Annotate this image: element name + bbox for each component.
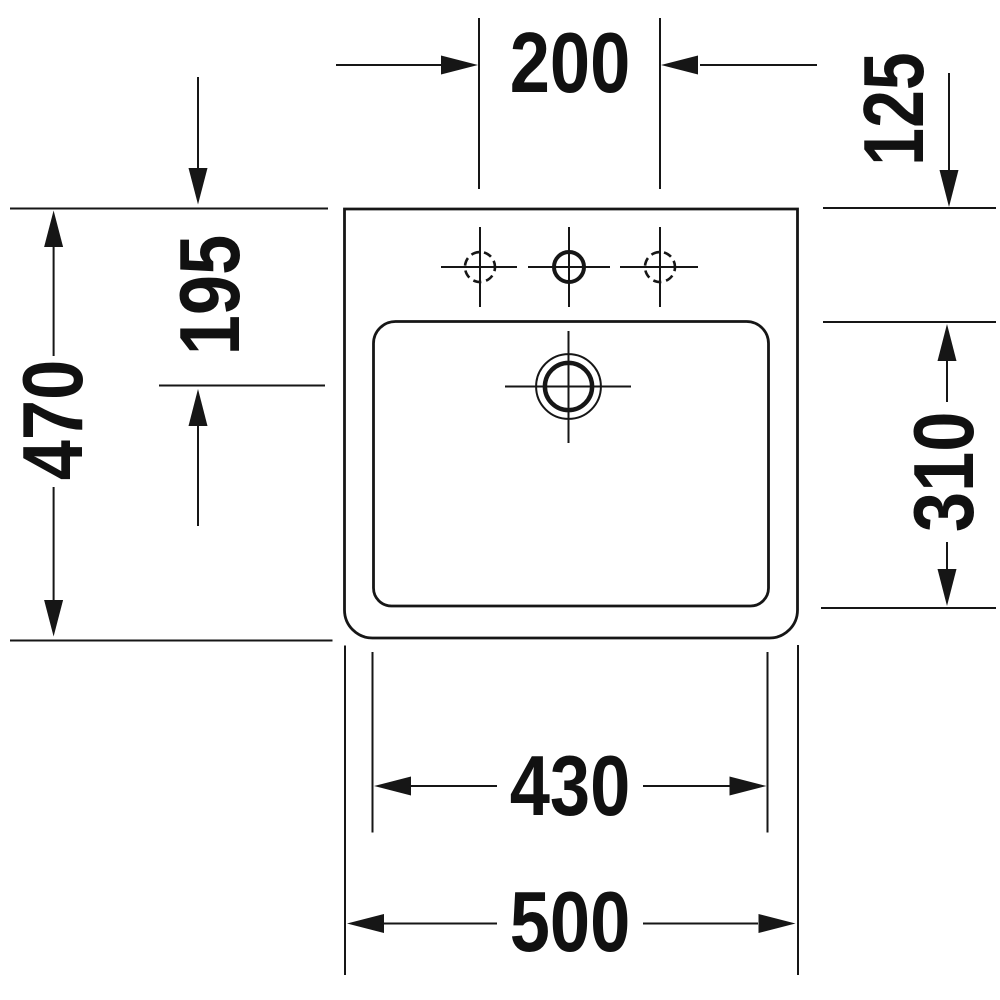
svg-text:310: 310	[896, 412, 991, 533]
svg-text:430: 430	[510, 738, 631, 833]
svg-text:125: 125	[847, 52, 942, 165]
svg-text:195: 195	[162, 235, 257, 356]
svg-text:500: 500	[510, 874, 631, 969]
svg-text:470: 470	[5, 360, 100, 481]
svg-text:200: 200	[510, 15, 631, 110]
